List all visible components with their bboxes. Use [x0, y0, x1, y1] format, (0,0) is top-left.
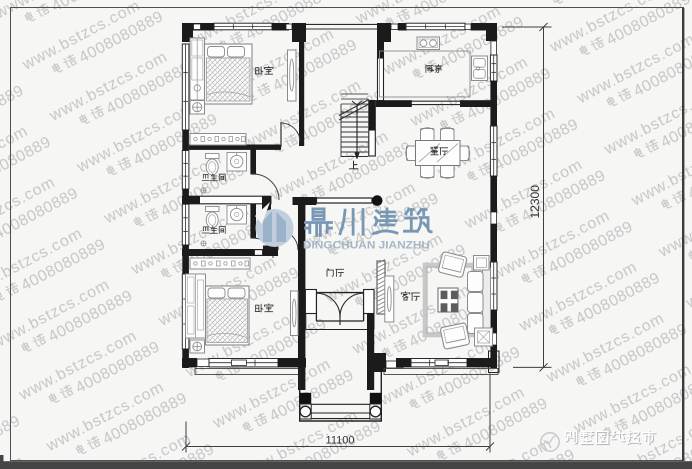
svg-text:12300: 12300	[528, 185, 542, 219]
svg-text:DINGCHUAN JIANZHU: DINGCHUAN JIANZHU	[303, 240, 430, 252]
svg-text:11100: 11100	[326, 435, 355, 447]
